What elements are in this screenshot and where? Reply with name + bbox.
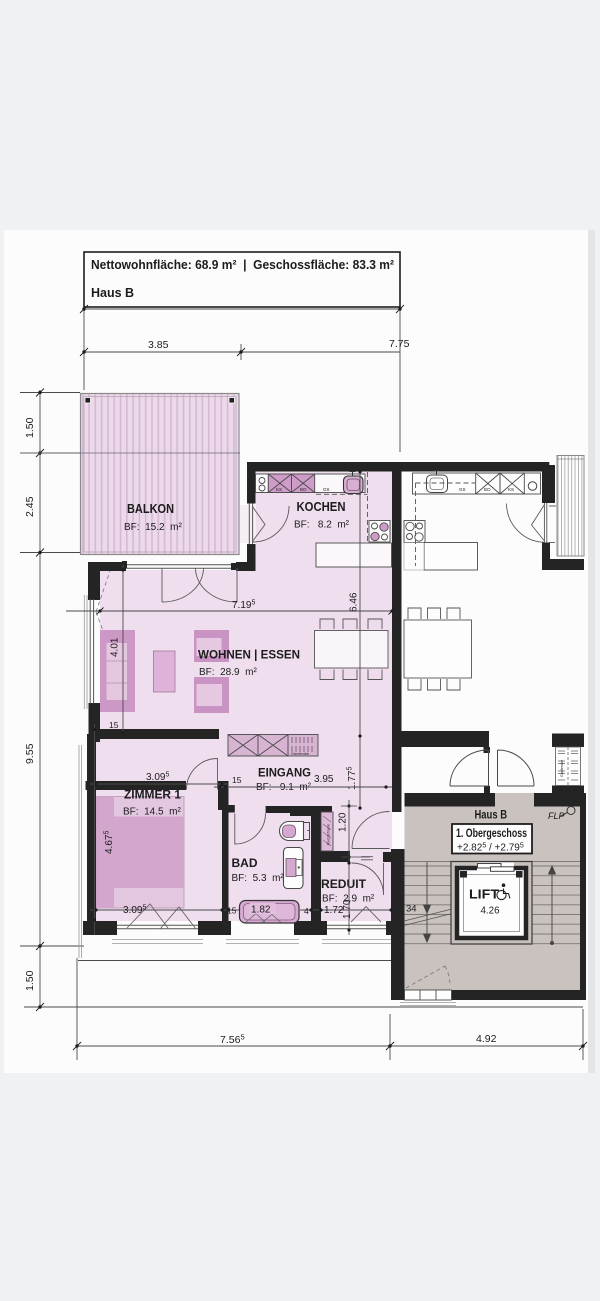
svg-text:BAD: BAD bbox=[232, 856, 258, 870]
svg-text:9.55: 9.55 bbox=[24, 743, 36, 764]
svg-text:1.20: 1.20 bbox=[338, 812, 349, 832]
svg-text:15: 15 bbox=[227, 906, 237, 916]
svg-text:BF: 8.2 m²: BF: 8.2 m² bbox=[294, 520, 350, 531]
svg-text:BF: 15.2 m²: BF: 15.2 m² bbox=[124, 522, 182, 533]
svg-text:6.46: 6.46 bbox=[349, 592, 360, 612]
svg-text:2.45: 2.45 bbox=[24, 496, 36, 517]
svg-text:KS: KS bbox=[508, 487, 514, 492]
svg-text:BF: 14.5 m²: BF: 14.5 m² bbox=[123, 807, 181, 818]
svg-text:Haus B: Haus B bbox=[475, 808, 508, 822]
svg-text:KOCHEN: KOCHEN bbox=[297, 499, 346, 514]
svg-text:3.85: 3.85 bbox=[148, 339, 169, 351]
svg-text:FLP: FLP bbox=[548, 811, 565, 821]
svg-text:BF: 28.9 m²: BF: 28.9 m² bbox=[199, 667, 257, 678]
svg-text:LIFT: LIFT bbox=[469, 887, 499, 902]
svg-text:BO: BO bbox=[484, 487, 491, 492]
svg-text:REDUIT: REDUIT bbox=[321, 877, 367, 891]
svg-text:Haus B: Haus B bbox=[91, 286, 134, 300]
svg-text:Red.Schrank: Red.Schrank bbox=[327, 824, 331, 845]
svg-text:34: 34 bbox=[406, 904, 417, 915]
svg-text:Garderobe: Garderobe bbox=[560, 760, 564, 777]
svg-text:1.50: 1.50 bbox=[24, 970, 36, 991]
svg-text:WOHNEN | ESSEN: WOHNEN | ESSEN bbox=[198, 648, 300, 662]
svg-text:+2.825 / +2.795: +2.825 / +2.795 bbox=[457, 843, 524, 854]
svg-text:KS: KS bbox=[276, 487, 282, 492]
svg-text:15: 15 bbox=[232, 775, 242, 785]
svg-text:1. Obergeschoss: 1. Obergeschoss bbox=[456, 828, 527, 840]
svg-text:GS: GS bbox=[323, 487, 330, 492]
svg-text:Nettowohnfläche: 68.9 m² | G: Nettowohnfläche: 68.9 m² | Geschossfläch… bbox=[91, 258, 394, 272]
svg-text:1.82: 1.82 bbox=[251, 905, 271, 916]
svg-text:EINGANG: EINGANG bbox=[258, 766, 311, 780]
svg-text:4.01: 4.01 bbox=[110, 637, 121, 657]
svg-text:ZIMMER 1: ZIMMER 1 bbox=[124, 788, 181, 802]
svg-text:7.75: 7.75 bbox=[389, 338, 410, 350]
svg-text:BALKON: BALKON bbox=[127, 502, 174, 516]
svg-text:BF: 5.3 m²: BF: 5.3 m² bbox=[232, 873, 285, 884]
svg-text:BO: BO bbox=[300, 487, 307, 492]
svg-text:3.95: 3.95 bbox=[314, 774, 334, 785]
svg-text:4.26: 4.26 bbox=[481, 905, 500, 917]
svg-text:BF: 9.1 m²: BF: 9.1 m² bbox=[256, 782, 312, 793]
svg-text:1.70: 1.70 bbox=[342, 899, 353, 919]
svg-text:Garderobe: Garderobe bbox=[291, 752, 309, 756]
svg-text:4.92: 4.92 bbox=[476, 1033, 497, 1045]
svg-text:1.72: 1.72 bbox=[324, 905, 344, 916]
svg-text:1.50: 1.50 bbox=[24, 417, 36, 438]
svg-text:GS: GS bbox=[459, 487, 466, 492]
svg-text:4: 4 bbox=[304, 906, 309, 916]
svg-text:15: 15 bbox=[109, 720, 119, 730]
